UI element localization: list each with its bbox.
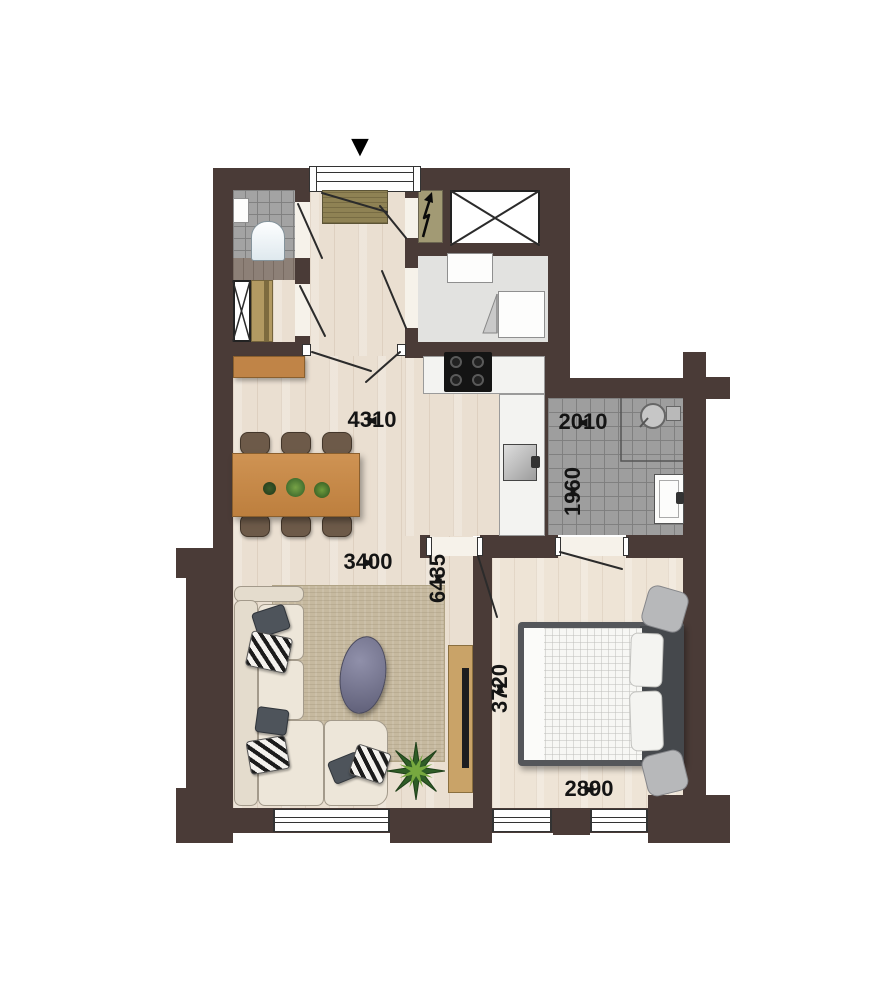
dimension-bathroom-width: ◄ 2010 ► (528, 409, 638, 435)
shower-head (640, 403, 666, 429)
tech-closet-door-opening (405, 198, 418, 238)
dining-chair (281, 432, 311, 455)
dimension-bedroom-width: ◄ 2890 ► (534, 776, 644, 802)
cooktop-burner (472, 374, 484, 386)
washing-machine (498, 291, 545, 338)
wall-left-pier (176, 548, 233, 578)
floorplan-canvas: ▼ ◄ 4310 ► ◄ 3400 ► ▲ 6435 ▼ ◄ 2010 ► ▲ … (0, 0, 890, 1000)
tv (462, 668, 469, 768)
arrow-right-icon: ► (576, 415, 591, 430)
toilet-hand-basin (233, 198, 249, 223)
wall-bottom-pier-bedroom (553, 808, 590, 835)
wall-left (213, 168, 233, 548)
dining-chair (240, 514, 270, 537)
sofa-cushion-dark (254, 706, 289, 736)
arrow-right-icon: ► (582, 782, 597, 797)
bed-pillow (629, 632, 664, 687)
dimension-hall-width: ◄ 4310 ► (312, 407, 432, 433)
shower-control (666, 406, 681, 421)
arrow-right-icon: ► (365, 413, 380, 428)
entrance-frame-right (413, 166, 421, 192)
bedroom-door-frame (477, 537, 483, 556)
bathroom-door-frame (555, 537, 561, 556)
bed-sheet (524, 628, 544, 760)
dimension-living-width: ◄ 3400 ► (308, 549, 428, 575)
bed-pillow (629, 690, 664, 751)
closet-door-opening (295, 284, 310, 336)
wall-right-arm (706, 377, 730, 399)
entrance-arrow-marker: ▼ (338, 132, 382, 162)
wall-bottom-pier-mid (390, 808, 492, 843)
entrance-door-opening (316, 166, 414, 192)
hall-opening-frame (397, 344, 406, 356)
wall-right-upper (548, 190, 570, 356)
living-room-window (273, 809, 390, 832)
dimension-living-length: ▲ 6435 ▼ (421, 497, 455, 659)
storage-x-symbol (450, 190, 540, 246)
bathroom-door-opening (558, 537, 626, 556)
wall-right (683, 352, 706, 808)
cooktop-burner (450, 374, 462, 386)
tech-closet (418, 190, 443, 243)
entrance-arrow-glyph: ▼ (345, 130, 375, 164)
wall-bathroom-top (570, 378, 683, 398)
arrow-down-icon: ▼ (493, 681, 508, 696)
cooktop-burner (450, 356, 462, 368)
wall-toilet-bottom (233, 342, 310, 356)
toilet-ledge (233, 258, 295, 280)
dining-chair (322, 514, 352, 537)
arrow-down-icon: ▼ (566, 484, 581, 499)
toilet-door-opening (295, 202, 310, 258)
cooktop-burner (472, 356, 484, 368)
sofa-cushion-zigzag (245, 735, 290, 775)
arrow-right-icon: ► (361, 555, 376, 570)
wall-storage-right (540, 190, 548, 246)
doormat (322, 190, 388, 224)
utility-door-opening (405, 268, 418, 328)
entrance-frame-left (309, 166, 317, 192)
wall-bedroom-top-b (480, 535, 558, 558)
dining-chair (322, 432, 352, 455)
kitchen-faucet (531, 456, 540, 468)
wall-left-lower (186, 578, 233, 790)
wall-junction (548, 356, 570, 398)
closet-floor (273, 280, 295, 342)
wall-tech-divider (443, 190, 450, 246)
wall-top-right (412, 168, 570, 190)
dimension-bedroom-length: ▲ 3720 ▼ (483, 645, 517, 731)
dimension-bathroom-length: ▲ 1960 ▼ (556, 445, 590, 537)
table-plant (286, 478, 305, 497)
arrow-down-icon: ▼ (431, 571, 446, 586)
tv-cabinet (448, 645, 473, 793)
bedroom-window-2 (590, 809, 648, 832)
wall-bedroom-top-c (626, 535, 683, 558)
bathroom-faucet (676, 492, 684, 504)
sideboard (233, 356, 305, 378)
toilet (251, 221, 285, 261)
shaft-x-symbol (233, 280, 251, 342)
dining-chair (281, 514, 311, 537)
table-plant (263, 482, 276, 495)
bathroom-door-frame (623, 537, 629, 556)
bedroom-window-1 (492, 809, 552, 832)
utility-cabinet (447, 253, 493, 283)
hall-wardrobe (251, 280, 273, 342)
table-plant (314, 482, 330, 498)
hall-opening-frame (302, 344, 311, 356)
dining-chair (240, 432, 270, 455)
plant (385, 740, 447, 802)
